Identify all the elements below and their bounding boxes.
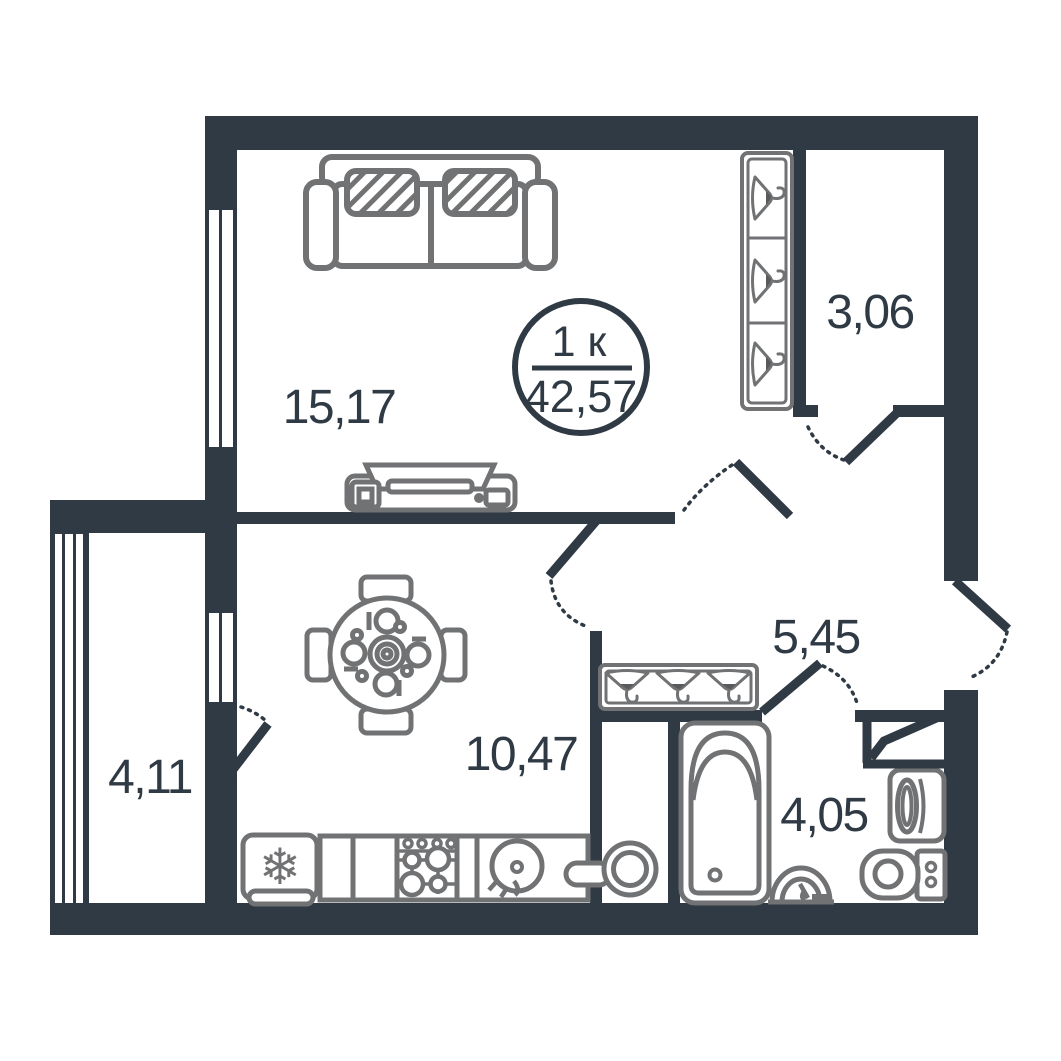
- dining-table: [307, 577, 465, 733]
- washing-machine: [890, 770, 944, 841]
- wall-balcony-top: [50, 500, 205, 533]
- window-living: [205, 210, 237, 447]
- wall-right-upper: [944, 150, 978, 581]
- chair: [307, 630, 331, 680]
- vent-shaft: [863, 716, 944, 764]
- balcony-glazing-edge2: [83, 533, 89, 903]
- kitchen-door-leaf: [549, 520, 597, 576]
- wall-bath-top-left: [590, 710, 762, 722]
- tv-stand: [347, 465, 515, 510]
- washbasin: [768, 868, 834, 902]
- entrance-door-leaf: [955, 581, 1008, 629]
- coat-rack: [600, 665, 757, 709]
- entrance-door-arc: [969, 632, 1007, 678]
- room-label-bathroom: 4,05: [780, 789, 867, 842]
- sofa-pillow-left: [347, 171, 417, 214]
- wall-top: [205, 116, 978, 150]
- window-kitchen: [205, 613, 237, 702]
- wall-wardrobe-stub: [806, 405, 818, 417]
- snowflake-icon: ❄: [259, 838, 301, 896]
- wardrobe-hangers: [742, 153, 792, 409]
- balcony-glazing-top-bar: [50, 530, 89, 534]
- wall-living-kitchen: [237, 512, 675, 524]
- badge-total-area: 42,57: [525, 371, 638, 422]
- wall-bottom: [50, 903, 978, 935]
- wardrobe-door-leaf: [846, 411, 899, 462]
- wall-nook-right: [668, 712, 680, 903]
- wall-living-wardrobe: [793, 150, 806, 417]
- balcony-glazing-edge1: [50, 530, 55, 903]
- room-label-hallway: 5,45: [772, 611, 859, 664]
- wall-right-lower: [944, 690, 978, 935]
- balcony-glazing-line1: [62, 533, 65, 903]
- floor-plan: ❄: [0, 0, 1061, 1061]
- area-badge: 1 к 42,57: [515, 301, 647, 433]
- living-door-arc: [684, 463, 735, 510]
- kitchen-counter: [320, 836, 588, 900]
- sofa-pillow-right: [445, 171, 515, 214]
- toilet: [862, 851, 945, 899]
- fridge: ❄: [243, 835, 317, 904]
- living-door-leaf: [736, 462, 790, 516]
- wall-left-a: [205, 150, 237, 210]
- room-label-living: 15,17: [283, 381, 396, 434]
- sofa: [306, 157, 555, 268]
- wardrobe-door-arc: [808, 427, 844, 460]
- kitchen-door-arc: [551, 581, 588, 627]
- room-label-balcony: 4,11: [108, 751, 192, 804]
- room-label-wardrobe: 3,06: [826, 286, 913, 339]
- bathroom-door-arc: [823, 666, 857, 703]
- badge-rooms-count: 1 к: [552, 318, 608, 366]
- wall-left-b: [205, 447, 237, 613]
- wall-left-c: [205, 702, 237, 903]
- floor-plan-canvas: ❄: [0, 0, 1061, 1061]
- room-label-kitchen: 10,47: [465, 728, 578, 781]
- bathtub: [681, 723, 769, 903]
- bathroom-door-leaf: [762, 663, 820, 712]
- balcony-glazing-line2: [73, 533, 76, 903]
- balcony-door-arc: [241, 707, 265, 720]
